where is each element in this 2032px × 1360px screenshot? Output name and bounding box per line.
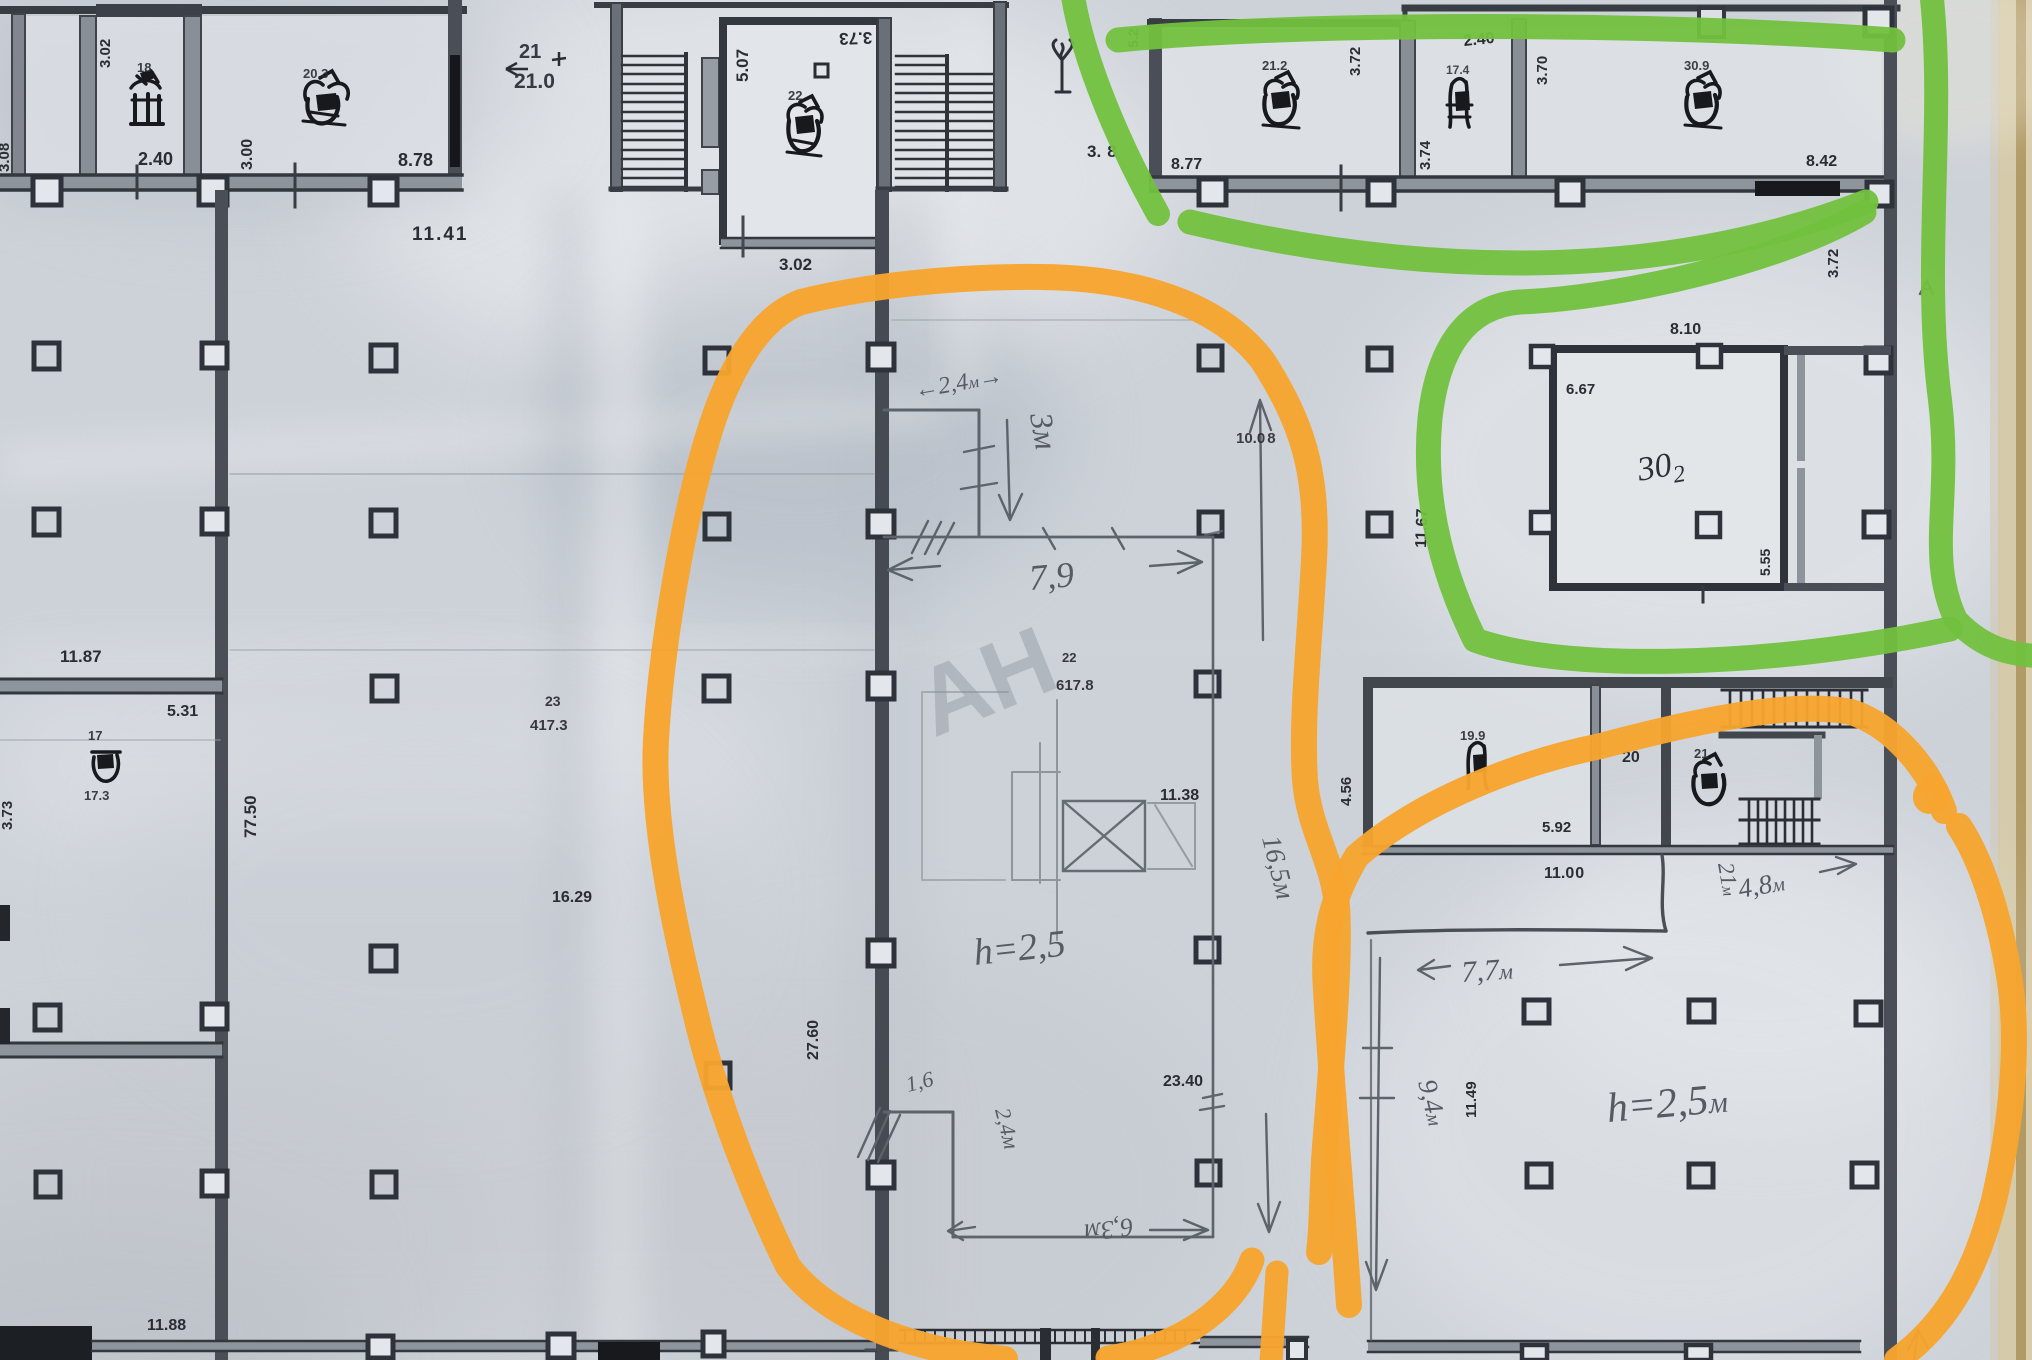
svg-text:11.41: 11.41 [412,224,469,245]
svg-text:3.72: 3.72 [1825,249,1842,278]
svg-text:11.00: 11.00 [1544,865,1584,882]
svg-text:2.40: 2.40 [138,149,173,169]
svg-text:27.60: 27.60 [805,1020,822,1060]
svg-text:17.3: 17.3 [84,788,109,803]
svg-text:19.9: 19.9 [1460,728,1485,743]
svg-text:22: 22 [788,88,802,103]
svg-text:20.3: 20.3 [303,66,328,81]
svg-text:21.0: 21.0 [514,70,555,93]
svg-text:3.74: 3.74 [1417,140,1434,170]
svg-text:30.9: 30.9 [1684,58,1709,73]
svg-text:3.08: 3.08 [0,143,13,172]
svg-text:77.50: 77.50 [241,795,260,838]
svg-text:5.92: 5.92 [1542,819,1571,836]
svg-text:11.49: 11.49 [1463,1081,1480,1118]
svg-text:6.67: 6.67 [1566,381,1595,398]
svg-text:7,9: 7,9 [1027,554,1075,598]
svg-text:21: 21 [1694,746,1708,761]
svg-text:21: 21 [519,41,541,63]
svg-text:23: 23 [545,693,561,709]
svg-text:17.4: 17.4 [1446,63,1470,77]
svg-text:3м: 3м [1023,409,1065,452]
svg-text:3.73: 3.73 [0,801,16,830]
svg-text:8.77: 8.77 [1171,156,1202,173]
svg-text:11.88: 11.88 [147,1317,186,1334]
svg-text:8.10: 8.10 [1670,321,1701,338]
svg-text:417.3: 417.3 [530,717,568,734]
svg-text:11.87: 11.87 [60,647,102,666]
svg-text:23.40: 23.40 [1163,1073,1203,1090]
svg-text:18: 18 [137,60,151,75]
svg-text:21.2: 21.2 [1262,58,1287,73]
svg-text:4.56: 4.56 [1338,777,1355,806]
svg-text:11.38: 11.38 [1160,787,1199,804]
svg-text:5.55: 5.55 [1757,549,1773,576]
svg-text:5.07: 5.07 [733,49,752,82]
svg-text:5.31: 5.31 [167,703,198,720]
svg-text:3.72: 3.72 [1347,47,1364,76]
svg-text:3.02: 3.02 [97,39,114,68]
svg-text:22: 22 [1062,650,1076,665]
svg-text:3.00: 3.00 [239,139,256,170]
svg-text:10.08: 10.08 [1236,430,1276,447]
svg-text:3.73: 3.73 [839,28,873,48]
svg-text:8.42: 8.42 [1806,153,1837,170]
svg-text:7,7м: 7,7м [1460,952,1514,989]
svg-text:3.70: 3.70 [1534,56,1551,85]
svg-text:17: 17 [88,728,102,743]
svg-text:3.02: 3.02 [779,255,812,274]
svg-text:8.78: 8.78 [398,150,433,170]
svg-text:16.29: 16.29 [552,889,592,906]
